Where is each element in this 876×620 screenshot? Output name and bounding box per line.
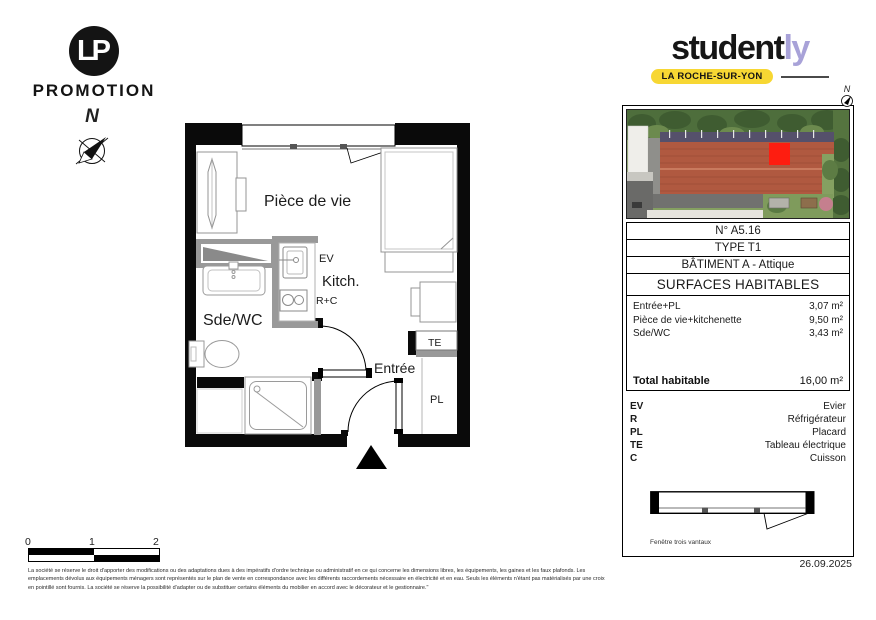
studently-wordmark: studently <box>640 30 840 67</box>
plan-sheet: LP PROMOTION N studently LA ROCHE-SUR-YO… <box>0 0 876 620</box>
city-badge-row: LA ROCHE-SUR-YON <box>640 69 840 84</box>
unit-number: N° A5.16 <box>627 223 849 240</box>
legend-label: Tableau électrique <box>765 439 846 452</box>
legend-row: EV Evier <box>630 400 846 413</box>
scale-ticks: 0 1 2 <box>25 536 167 548</box>
north-label: N <box>70 106 114 128</box>
studently-word-black: student <box>671 29 783 67</box>
badge-dash-line <box>781 76 829 78</box>
total-area: 16,00 m² <box>800 375 843 387</box>
total-label: Total habitable <box>633 375 710 387</box>
total-area-row: Total habitable 16,00 m² <box>627 372 849 390</box>
window-key-icon <box>650 491 820 531</box>
city-badge: LA ROCHE-SUR-YON <box>651 69 772 84</box>
scale-bar-graphic <box>28 548 160 562</box>
north-compass: N <box>70 106 114 169</box>
toilet-bowl-icon <box>205 341 239 368</box>
scale-tick: 2 <box>153 536 159 548</box>
legend-label: Evier <box>823 400 846 413</box>
hob-label: R+C <box>316 295 338 307</box>
room-name: Sde/WC <box>633 327 670 341</box>
floor-plan: Pièce de vie EV Kitch. R+C Sde/WC Entrée… <box>180 112 480 480</box>
scale-tick: 0 <box>25 536 31 548</box>
legend-abbr: PL <box>630 426 643 439</box>
entrance-label: Entrée <box>374 360 415 376</box>
unit-info-panel: N° A5.16 TYPE T1 BÂTIMENT A - Attique SU… <box>622 105 854 557</box>
kitchen-label: Kitch. <box>322 273 360 290</box>
studently-word-accent: ly <box>783 29 808 67</box>
legend-label: Placard <box>812 426 846 439</box>
desk-left-icon <box>197 152 237 233</box>
plan-doors <box>318 326 403 469</box>
room-name: Pièce de vie+kitchenette <box>633 314 742 328</box>
legend-abbr: TE <box>630 439 643 452</box>
entrance-arrow-icon <box>356 445 387 469</box>
abbreviation-legend: EV Evier R Réfrigérateur PL Placard TE T… <box>626 398 850 467</box>
legend-row: R Réfrigérateur <box>630 413 846 426</box>
storage-niche <box>197 389 242 433</box>
sink-label: EV <box>319 253 334 265</box>
legend-label: Réfrigérateur <box>788 413 846 426</box>
scale-bar: 0 1 2 <box>25 536 167 562</box>
chair-left-icon <box>236 178 246 211</box>
legend-row: PL Placard <box>630 426 846 439</box>
closet-label: PL <box>430 394 443 406</box>
document-date: 26.09.2025 <box>768 558 852 570</box>
interior-door-leaf <box>321 370 369 377</box>
legend-abbr: R <box>630 413 637 426</box>
unit-location-marker <box>769 143 790 165</box>
room-area: 3,07 m² <box>809 300 843 314</box>
legend-row: C Cuisson <box>630 452 846 465</box>
legend-row: TE Tableau électrique <box>630 439 846 452</box>
room-area-row: Pièce de vie+kitchenette 9,50 m² <box>633 314 843 328</box>
photo-compass: N <box>835 85 859 113</box>
window-key-caption: Fenêtre trois vantaux <box>650 539 820 546</box>
aerial-photo <box>626 109 850 219</box>
electrical-panel-label: TE <box>428 337 441 349</box>
kitchenette <box>279 243 315 321</box>
legend-label: Cuisson <box>810 452 846 465</box>
unit-info-table: N° A5.16 TYPE T1 BÂTIMENT A - Attique SU… <box>626 222 850 391</box>
living-window <box>242 125 395 163</box>
unit-type: TYPE T1 <box>627 240 849 257</box>
room-areas: Entrée+PL 3,07 m² Pièce de vie+kitchenet… <box>627 296 849 372</box>
aerial-photo-illustration <box>627 110 849 218</box>
living-room-label: Pièce de vie <box>264 193 351 210</box>
legal-disclaimer: La société se réserve le droit d'apporte… <box>28 567 608 592</box>
photo-compass-icon <box>840 94 854 108</box>
desk-right-icon <box>420 282 456 322</box>
bed-footboard-icon <box>385 252 453 272</box>
room-name: Entrée+PL <box>633 300 681 314</box>
legend-abbr: EV <box>630 400 643 413</box>
room-area-row: Sde/WC 3,43 m² <box>633 327 843 341</box>
window-key: Fenêtre trois vantaux <box>650 491 820 546</box>
scale-tick: 1 <box>89 536 95 548</box>
lp-monogram-icon: LP <box>69 26 119 76</box>
chair-right-icon <box>411 288 420 316</box>
legend-abbr: C <box>630 452 637 465</box>
lp-monogram: LP <box>77 35 108 68</box>
photo-north-label: N <box>835 85 859 94</box>
room-area: 3,43 m² <box>809 327 843 341</box>
bathroom-label: Sde/WC <box>203 312 263 329</box>
room-area-row: Entrée+PL 3,07 m² <box>633 300 843 314</box>
lp-promotion-logo: LP PROMOTION <box>24 26 164 101</box>
compass-rose-icon <box>72 131 112 169</box>
studently-logo: studently LA ROCHE-SUR-YON <box>640 30 840 84</box>
surfaces-title: SURFACES HABITABLES <box>627 274 849 296</box>
entry-door-leaf <box>396 381 402 431</box>
room-area: 9,50 m² <box>809 314 843 328</box>
unit-building: BÂTIMENT A - Attique <box>627 257 849 274</box>
lp-promotion-name: PROMOTION <box>24 81 164 101</box>
